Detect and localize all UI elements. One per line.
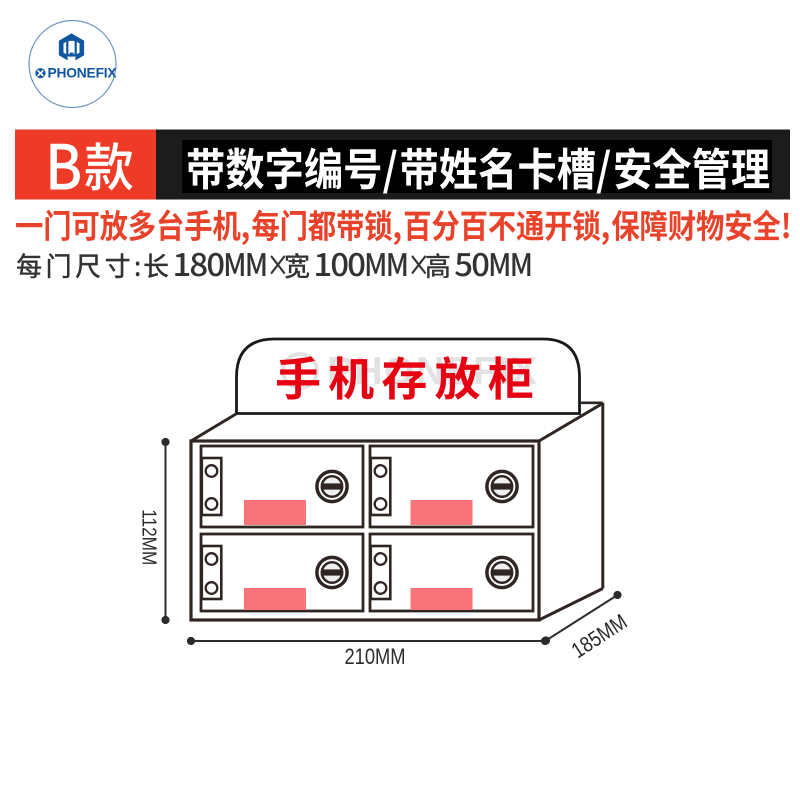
- svg-text:210MM: 210MM: [344, 646, 405, 670]
- svg-text:PHONEFIX: PHONEFIX: [48, 66, 118, 81]
- svg-text:112MM: 112MM: [137, 509, 160, 565]
- svg-text:PHONEFIX: PHONEFIX: [327, 350, 538, 393]
- svg-text:185MM: 185MM: [568, 610, 632, 663]
